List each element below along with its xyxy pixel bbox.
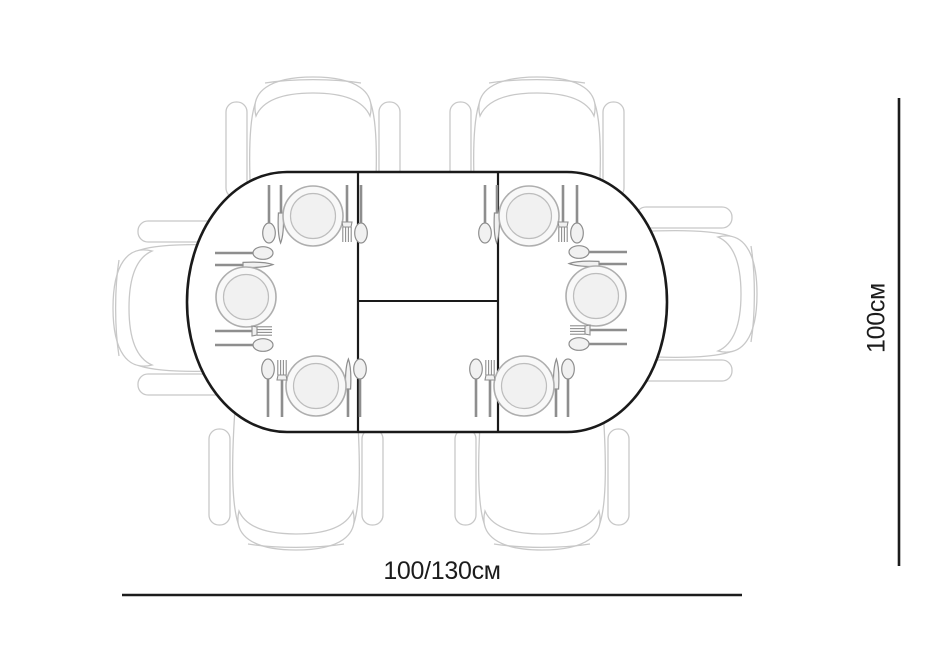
table-plan-diagram [0,0,937,653]
width-dimension-label: 100/130см [242,557,642,586]
depth-dimension-label: 100см [863,283,892,353]
diagram-canvas: 100/130см 100см [0,0,937,653]
